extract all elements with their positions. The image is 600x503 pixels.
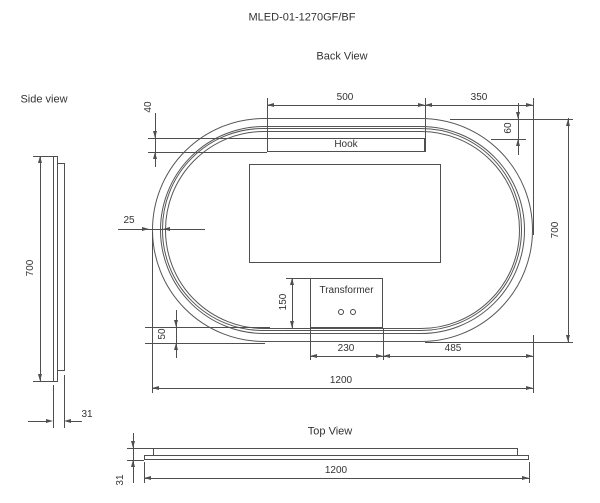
- dim-text-back-width: 1200: [330, 376, 352, 386]
- dim-arrow: [290, 321, 294, 328]
- top-view-label: Top View: [308, 427, 352, 438]
- technical-drawing-canvas: MLED-01-1270GF/BF Back View Side view To…: [0, 0, 600, 503]
- dim-arrow: [267, 103, 274, 107]
- dim-text-top-depth: 31: [116, 474, 126, 485]
- transformer-hole-icon: [350, 309, 356, 315]
- dim-line-1200-top: [144, 478, 529, 479]
- side-view-label: Side view: [20, 95, 67, 106]
- dim-text-hook-offset-right: 350: [471, 93, 488, 103]
- ext-line: [127, 448, 153, 449]
- transformer-box: Transformer: [310, 278, 383, 328]
- ext-line: [148, 138, 267, 139]
- dim-text-bottom-frame-gap: 50: [158, 328, 168, 339]
- dim-text-transformer-width: 230: [338, 344, 355, 354]
- dim-arrow: [174, 343, 178, 350]
- dim-text-side-height: 700: [26, 260, 36, 277]
- ext-line: [127, 460, 144, 461]
- dim-text-transformer-offset-right: 485: [445, 344, 462, 354]
- dim-line-1200-back: [152, 388, 533, 389]
- dim-arrow: [526, 386, 533, 390]
- hook-label: Hook: [334, 140, 357, 150]
- dim-arrow: [290, 278, 294, 285]
- ext-line: [529, 462, 530, 483]
- hook-bar: Hook: [267, 138, 425, 152]
- dim-line-500-350: [267, 105, 533, 106]
- top-view-back-panel-edge: [153, 448, 154, 455]
- dim-arrow: [46, 419, 53, 423]
- dim-arrow: [516, 112, 520, 119]
- dim-text-hook-width: 500: [337, 93, 354, 103]
- dim-arrow: [383, 354, 390, 358]
- dim-text-transformer-height: 150: [279, 294, 289, 311]
- transformer-hole-icon: [338, 309, 344, 315]
- dim-arrow: [174, 320, 178, 327]
- dim-arrow: [310, 354, 317, 358]
- dim-arrow: [64, 419, 71, 423]
- ext-line: [148, 152, 267, 153]
- inner-panel-outline: [249, 164, 441, 263]
- ext-line: [33, 156, 53, 157]
- ext-line: [53, 385, 54, 428]
- dim-text-top-width: 1200: [325, 466, 347, 476]
- dim-arrow: [566, 335, 570, 342]
- dim-arrow: [131, 441, 135, 448]
- ext-line: [533, 335, 534, 393]
- dim-line-31-side: [28, 421, 46, 422]
- ext-line: [286, 328, 310, 329]
- dim-arrow: [526, 103, 533, 107]
- top-view-back-panel-line: [153, 448, 517, 449]
- dim-arrow: [516, 139, 520, 146]
- dim-text-side-depth: 31: [81, 410, 92, 420]
- dim-arrow: [131, 460, 135, 467]
- dim-arrow: [152, 386, 159, 390]
- dim-line-31-side: [71, 421, 82, 422]
- dim-line-60: [518, 103, 519, 155]
- dim-arrow: [526, 354, 533, 358]
- dim-line-25: [118, 229, 205, 230]
- dim-text-frame-thickness: 25: [123, 216, 134, 226]
- top-view-back-panel-edge: [517, 448, 518, 455]
- back-view-label: Back View: [316, 52, 367, 63]
- dim-arrow: [418, 103, 425, 107]
- dim-arrow: [153, 152, 157, 159]
- dim-text-edge-to-hook: 60: [504, 122, 514, 133]
- transformer-holes: [311, 302, 382, 320]
- dim-text-back-height: 700: [551, 222, 561, 239]
- dim-line-50: [176, 310, 177, 358]
- top-view-mirror-bar: [144, 455, 529, 460]
- dim-arrow: [38, 156, 42, 163]
- dim-arrow: [425, 103, 432, 107]
- dim-arrow: [566, 119, 570, 126]
- dim-arrow: [142, 227, 149, 231]
- ext-line: [450, 119, 573, 120]
- ext-line: [152, 232, 153, 393]
- dim-arrow: [38, 374, 42, 381]
- ext-line: [145, 343, 265, 344]
- dim-arrow: [376, 354, 383, 358]
- drawing-title: MLED-01-1270GF/BF: [249, 13, 356, 24]
- transformer-label: Transformer: [311, 286, 382, 296]
- dim-arrow: [522, 476, 529, 480]
- side-view-back-panel: [57, 163, 65, 371]
- dim-line-700-back: [568, 118, 569, 342]
- ext-line: [33, 381, 53, 382]
- dim-line-700-side: [40, 156, 41, 381]
- dim-arrow: [163, 227, 170, 231]
- dim-text-hook-bar-height: 40: [144, 101, 154, 112]
- dim-line-230-485: [310, 356, 533, 357]
- dim-arrow: [153, 131, 157, 138]
- dim-arrow: [144, 476, 151, 480]
- ext-line: [491, 139, 526, 140]
